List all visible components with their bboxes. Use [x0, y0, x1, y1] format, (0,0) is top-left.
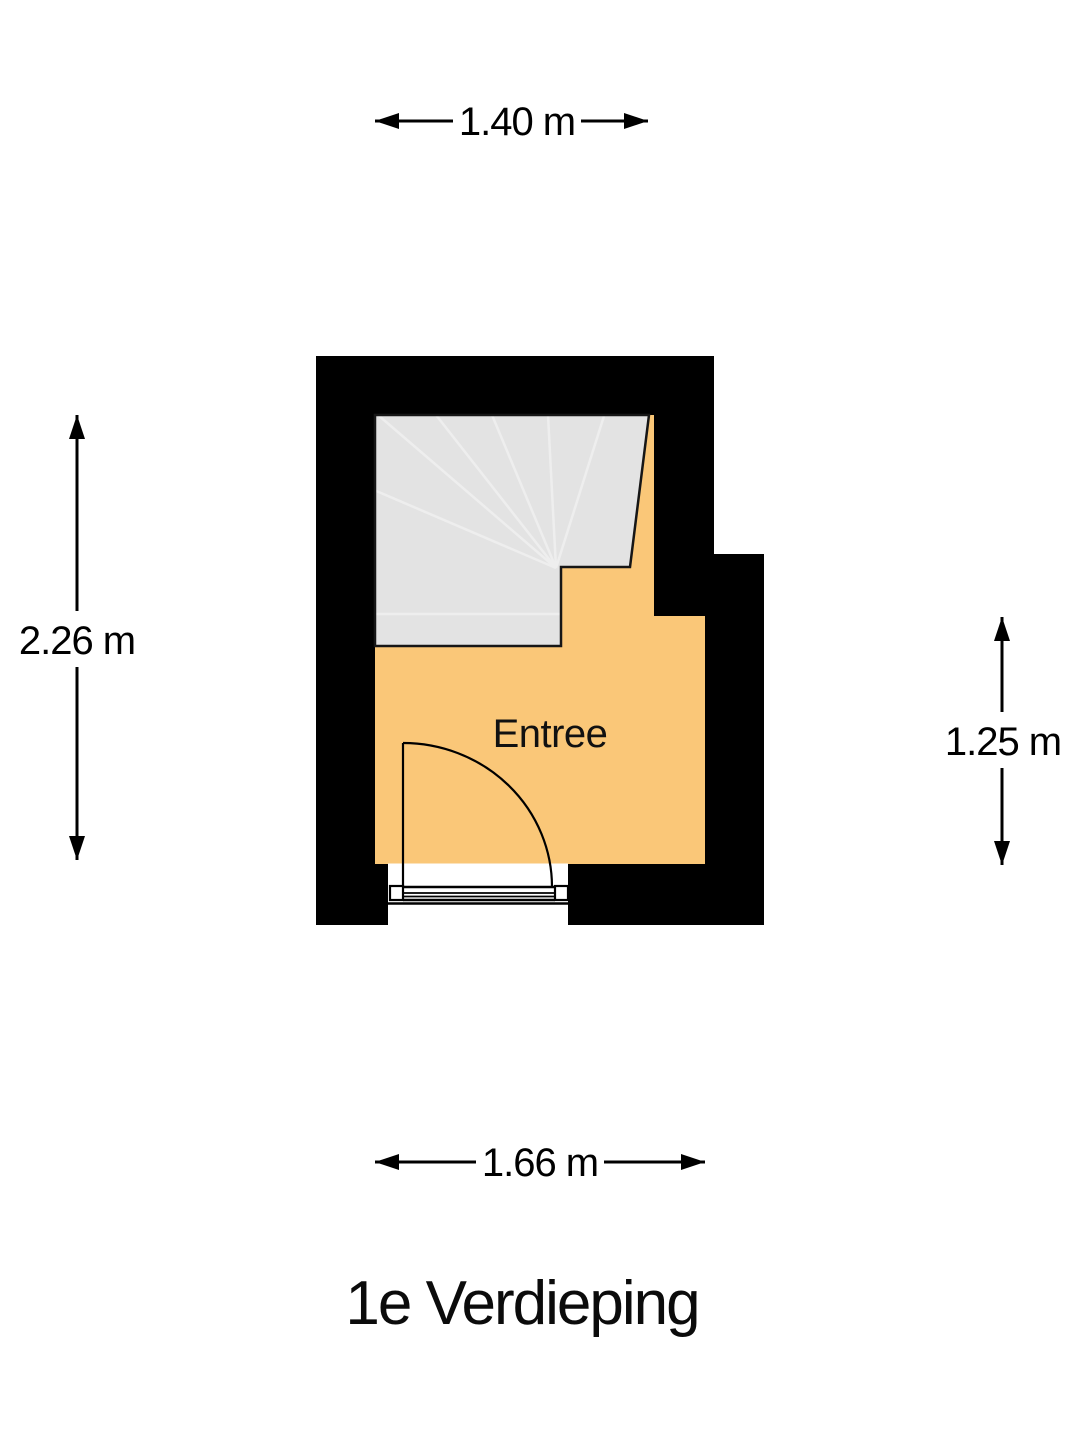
dimension-label-bottom: 1.66 m: [482, 1141, 598, 1185]
floor-plan-page: Entree 1.40 m 2.26 m 1.25 m: [0, 0, 1080, 1440]
dimension-label-left: 2.26 m: [19, 619, 135, 663]
dimension-label-right: 1.25 m: [945, 720, 1061, 764]
door-jamb-right: [555, 886, 568, 900]
dimension-label-top: 1.40 m: [459, 100, 575, 144]
room-label: Entree: [493, 712, 608, 756]
floor-title: 1e Verdieping: [345, 1269, 698, 1338]
door-opening: [388, 864, 568, 926]
door-jamb-left: [390, 886, 403, 900]
floor-plan-canvas: Entree 1.40 m 2.26 m 1.25 m: [0, 0, 1080, 1440]
